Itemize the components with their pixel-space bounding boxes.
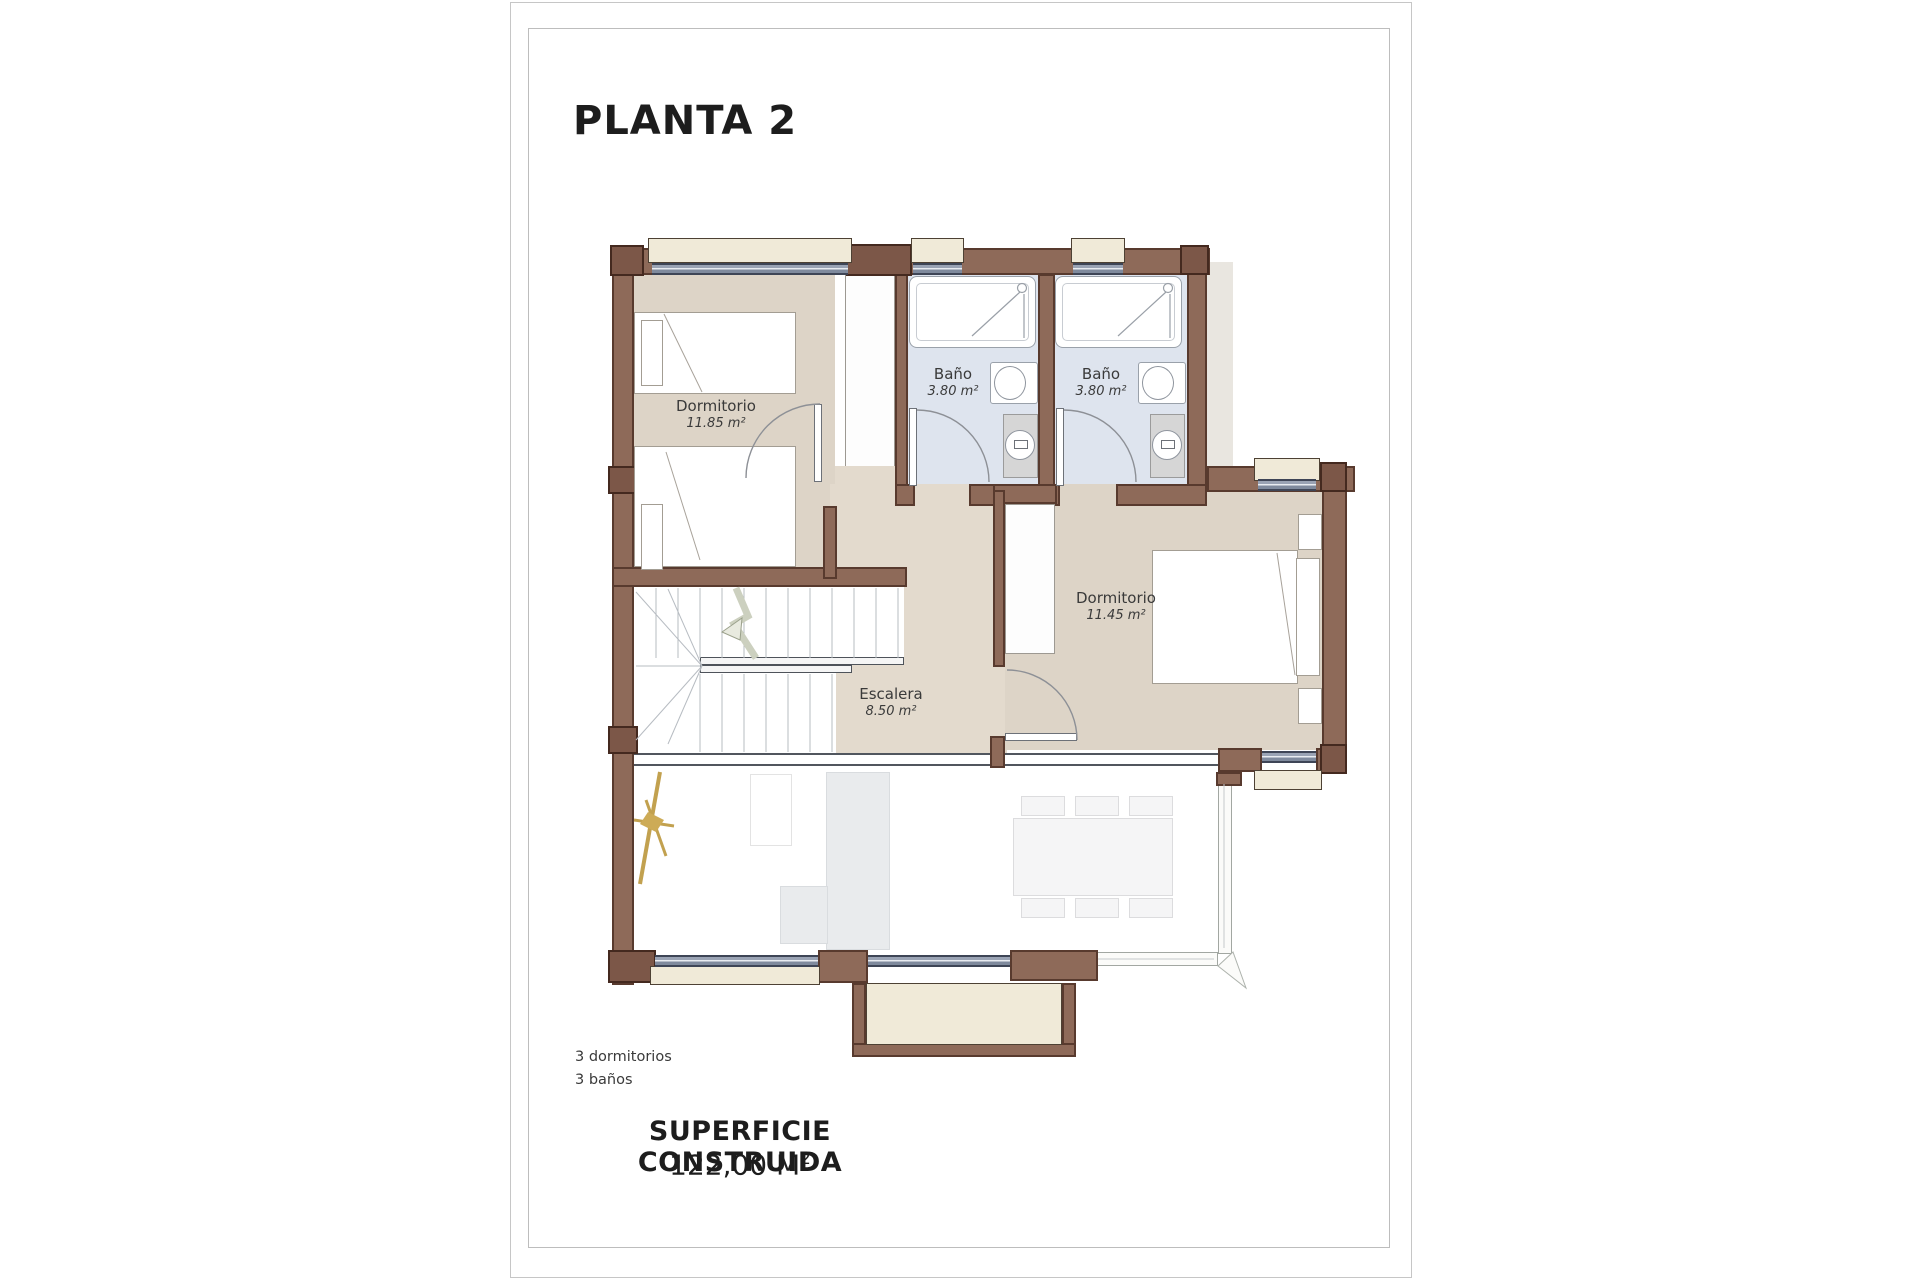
room-name: Escalera bbox=[859, 685, 923, 703]
feature-bedrooms: 3 dormitorios bbox=[575, 1046, 672, 1068]
floor-plan-canvas: PLANTA 2 bbox=[0, 0, 1920, 1280]
glass-corner-mitre bbox=[1218, 952, 1246, 988]
linework-overlay bbox=[600, 230, 1370, 1080]
room-area: 11.85 m² bbox=[646, 416, 786, 431]
built-area-value: 122,00 M2 bbox=[590, 1148, 890, 1181]
shower-head-icon-2 bbox=[1118, 284, 1173, 339]
built-area-number: 122,00 M bbox=[669, 1148, 800, 1181]
room-area: 8.50 m² bbox=[836, 704, 946, 719]
glass-wall-mullions bbox=[1098, 784, 1224, 959]
page-title: PLANTA 2 bbox=[573, 98, 797, 144]
room-area: 3.80 m² bbox=[903, 384, 1003, 399]
room-name: Dormitorio bbox=[676, 397, 756, 415]
room-area: 3.80 m² bbox=[1051, 384, 1151, 399]
label-dormitorio-1: Dormitorio 11.85 m² bbox=[646, 398, 786, 431]
label-bano-2: Baño 3.80 m² bbox=[1051, 366, 1151, 399]
room-name: Dormitorio bbox=[1076, 589, 1156, 607]
stair-winders bbox=[636, 589, 702, 744]
built-area-sup: 2 bbox=[800, 1148, 811, 1168]
label-escalera: Escalera 8.50 m² bbox=[836, 686, 946, 719]
room-name: Baño bbox=[1082, 365, 1120, 383]
shower-head-icon-1 bbox=[972, 284, 1027, 339]
label-dormitorio-2: Dormitorio 11.45 m² bbox=[1046, 590, 1186, 623]
label-bano-1: Baño 3.80 m² bbox=[903, 366, 1003, 399]
room-area: 11.45 m² bbox=[1046, 608, 1186, 623]
door-arc-bano-2 bbox=[1064, 410, 1136, 482]
door-arc-dormitorio-2 bbox=[1007, 670, 1077, 740]
room-name: Baño bbox=[934, 365, 972, 383]
plant-icon bbox=[634, 772, 674, 884]
feature-bathrooms: 3 baños bbox=[575, 1069, 633, 1091]
door-arc-bano-1 bbox=[917, 410, 989, 482]
stair-treads-upper bbox=[656, 588, 898, 658]
stair-treads-lower bbox=[700, 674, 832, 752]
